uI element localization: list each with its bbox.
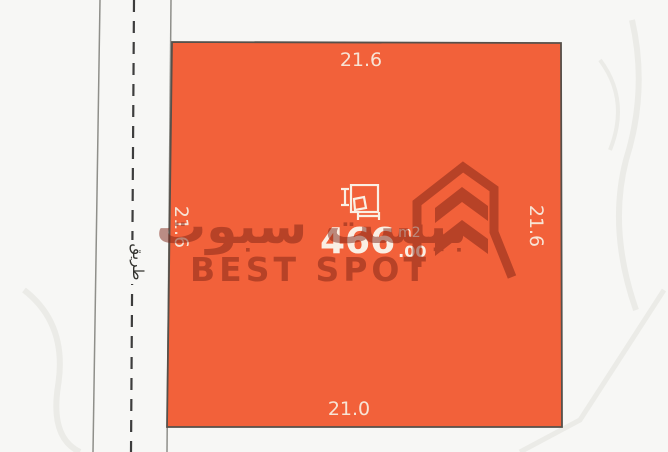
- area-unit: m2: [398, 226, 421, 240]
- area-decimal: .00: [398, 244, 426, 260]
- road-name-label: طريق: [128, 240, 148, 284]
- dimension-left: 21.6: [171, 205, 191, 249]
- area-value: 466: [320, 224, 395, 260]
- dimension-bottom: 21.0: [327, 399, 371, 419]
- area-label: 466 m2 .00: [320, 224, 427, 260]
- area-value-suffix: m2 .00: [398, 226, 426, 260]
- area-dimensions-icon: [339, 184, 385, 224]
- dimension-top: 21.6: [339, 50, 383, 70]
- dimension-right: 21.6: [526, 204, 546, 248]
- plot-map-canvas: طريق 21.6 21.0 21.6 21.6 466 m2 .00 بيست…: [0, 0, 668, 452]
